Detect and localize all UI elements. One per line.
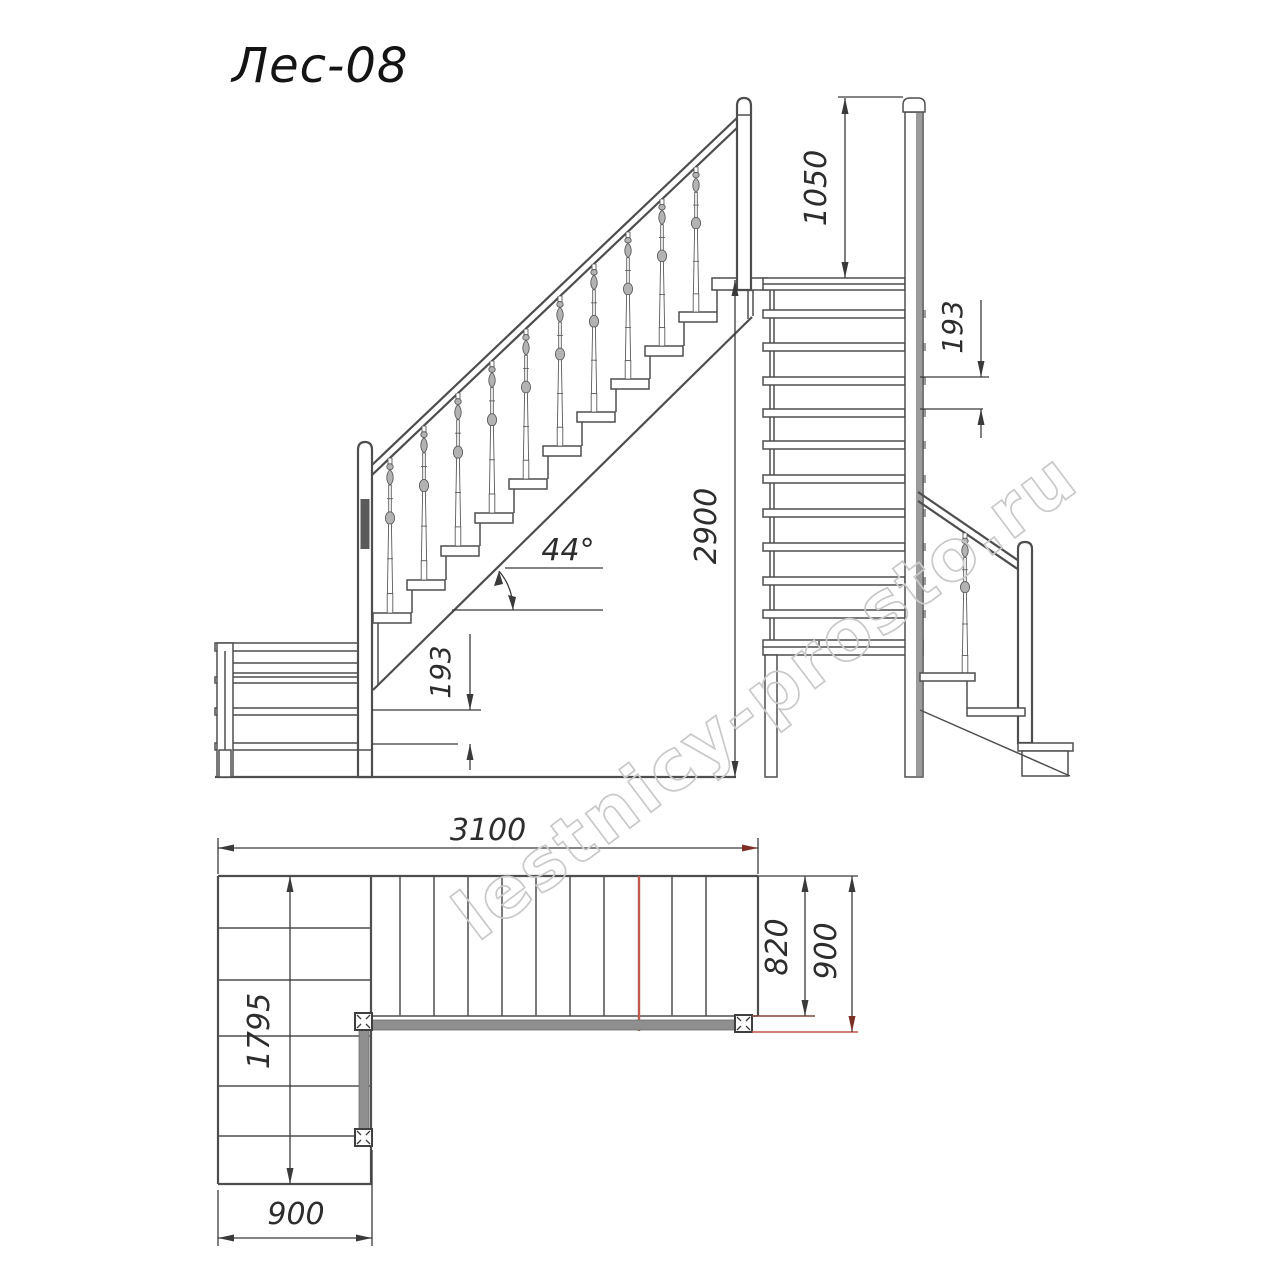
dim-arrowhead bbox=[978, 361, 985, 377]
tread bbox=[967, 708, 1025, 716]
flight-width-label: 900 bbox=[809, 922, 844, 979]
arc-arrowhead bbox=[494, 571, 503, 586]
newel-square bbox=[735, 1015, 752, 1032]
tread bbox=[407, 580, 445, 590]
newel-square bbox=[355, 1129, 372, 1146]
newel-post bbox=[737, 98, 751, 290]
turned-baluster bbox=[691, 167, 700, 312]
handrail bbox=[372, 116, 739, 475]
lower-flight-length-dimension: 1795 bbox=[242, 876, 294, 1184]
total-rise-label: 2900 bbox=[689, 488, 724, 564]
step-bar bbox=[763, 377, 905, 385]
dim-arrowhead bbox=[467, 744, 474, 760]
dim-arrowhead bbox=[842, 262, 849, 278]
turned-baluster bbox=[555, 296, 564, 446]
handrail-bar bbox=[372, 1020, 735, 1030]
tread bbox=[543, 446, 581, 456]
clear-width-label: 820 bbox=[760, 918, 795, 975]
lower-flight-width-dimension: 900 bbox=[218, 1150, 372, 1246]
turned-baluster bbox=[419, 426, 428, 580]
stair-steps bbox=[373, 278, 767, 685]
dim-arrowhead bbox=[802, 876, 809, 892]
tread bbox=[679, 312, 717, 322]
turned-baluster bbox=[589, 264, 598, 412]
plan-lower-flight-steps bbox=[218, 928, 371, 1136]
dim-arrowhead bbox=[467, 694, 474, 710]
dim-arrowhead bbox=[356, 1235, 372, 1242]
step-bar bbox=[215, 708, 358, 715]
lower-flight-width-label: 900 bbox=[267, 1197, 324, 1232]
post-foot bbox=[219, 750, 231, 777]
side-elevation-view: 44° 193 2900 bbox=[215, 98, 767, 777]
dim-arrowhead bbox=[842, 98, 849, 114]
handrail-bottom-line bbox=[372, 126, 739, 475]
dim-arrowhead bbox=[287, 1168, 294, 1184]
bottom-tread bbox=[1018, 743, 1073, 751]
step-bar bbox=[763, 310, 905, 318]
riser-dim-label: 193 bbox=[936, 300, 969, 353]
newel-post bbox=[358, 442, 372, 777]
dim-arrowhead bbox=[802, 1000, 809, 1016]
angle-label: 44° bbox=[541, 533, 594, 568]
top-newel-post bbox=[737, 98, 751, 290]
riser-dimension-side: 193 bbox=[372, 634, 481, 770]
turned-baluster bbox=[521, 329, 530, 479]
newel-cap bbox=[903, 98, 925, 112]
step-bar bbox=[232, 663, 358, 673]
turned-baluster bbox=[623, 232, 632, 379]
clear-width-dimension: 820 bbox=[752, 876, 815, 1016]
tread bbox=[645, 346, 683, 356]
staircase-blueprint-svg: Лес-08 bbox=[0, 0, 1280, 1280]
handrail-bar-vertical bbox=[359, 1030, 369, 1129]
drawing-canvas: Лес-08 bbox=[0, 0, 1280, 1280]
step-bar bbox=[763, 509, 905, 517]
middle-newel-post bbox=[358, 442, 372, 777]
drawing-title: Лес-08 bbox=[230, 38, 408, 94]
lower-flight-length-label: 1795 bbox=[242, 993, 277, 1069]
dim-arrowhead bbox=[218, 845, 234, 852]
step-bar bbox=[215, 677, 358, 683]
step-bar bbox=[763, 343, 905, 351]
turned-baluster bbox=[487, 361, 496, 513]
dim-arrowhead bbox=[742, 845, 758, 852]
rail-height-dimension: 1050 bbox=[799, 97, 903, 278]
handrail-top-line bbox=[372, 116, 739, 465]
turned-baluster bbox=[385, 458, 394, 613]
turned-baluster bbox=[657, 199, 666, 346]
tread bbox=[611, 379, 649, 389]
plan-handrail bbox=[355, 1013, 752, 1146]
step-bar bbox=[763, 543, 905, 551]
tread bbox=[920, 673, 975, 681]
rail-height-label: 1050 bbox=[799, 150, 834, 226]
lower-flight-edge-view bbox=[215, 643, 358, 777]
angle-dimension: 44° bbox=[452, 533, 603, 610]
riser-dimension-front: 193 bbox=[920, 300, 989, 438]
step-bar bbox=[215, 643, 358, 651]
dim-arrowhead bbox=[849, 1016, 856, 1032]
angle-arc bbox=[499, 571, 513, 610]
dim-arrowhead bbox=[849, 876, 856, 892]
tread bbox=[577, 412, 615, 422]
step-bar bbox=[763, 475, 905, 483]
newel-square bbox=[355, 1013, 372, 1030]
dim-arrowhead bbox=[287, 876, 294, 892]
dim-arrowhead bbox=[218, 1235, 234, 1242]
dim-arrowhead bbox=[978, 409, 985, 425]
step-bar bbox=[763, 441, 905, 449]
newel-dark-slot bbox=[361, 499, 370, 549]
step-bar bbox=[215, 743, 358, 750]
tread bbox=[441, 546, 479, 556]
riser-dim-label: 193 bbox=[424, 645, 457, 698]
step-bar bbox=[763, 409, 905, 417]
tread bbox=[475, 513, 513, 523]
arc-arrowhead bbox=[508, 595, 516, 610]
tread bbox=[509, 479, 547, 489]
turned-baluster bbox=[453, 393, 462, 546]
tread bbox=[373, 613, 411, 623]
